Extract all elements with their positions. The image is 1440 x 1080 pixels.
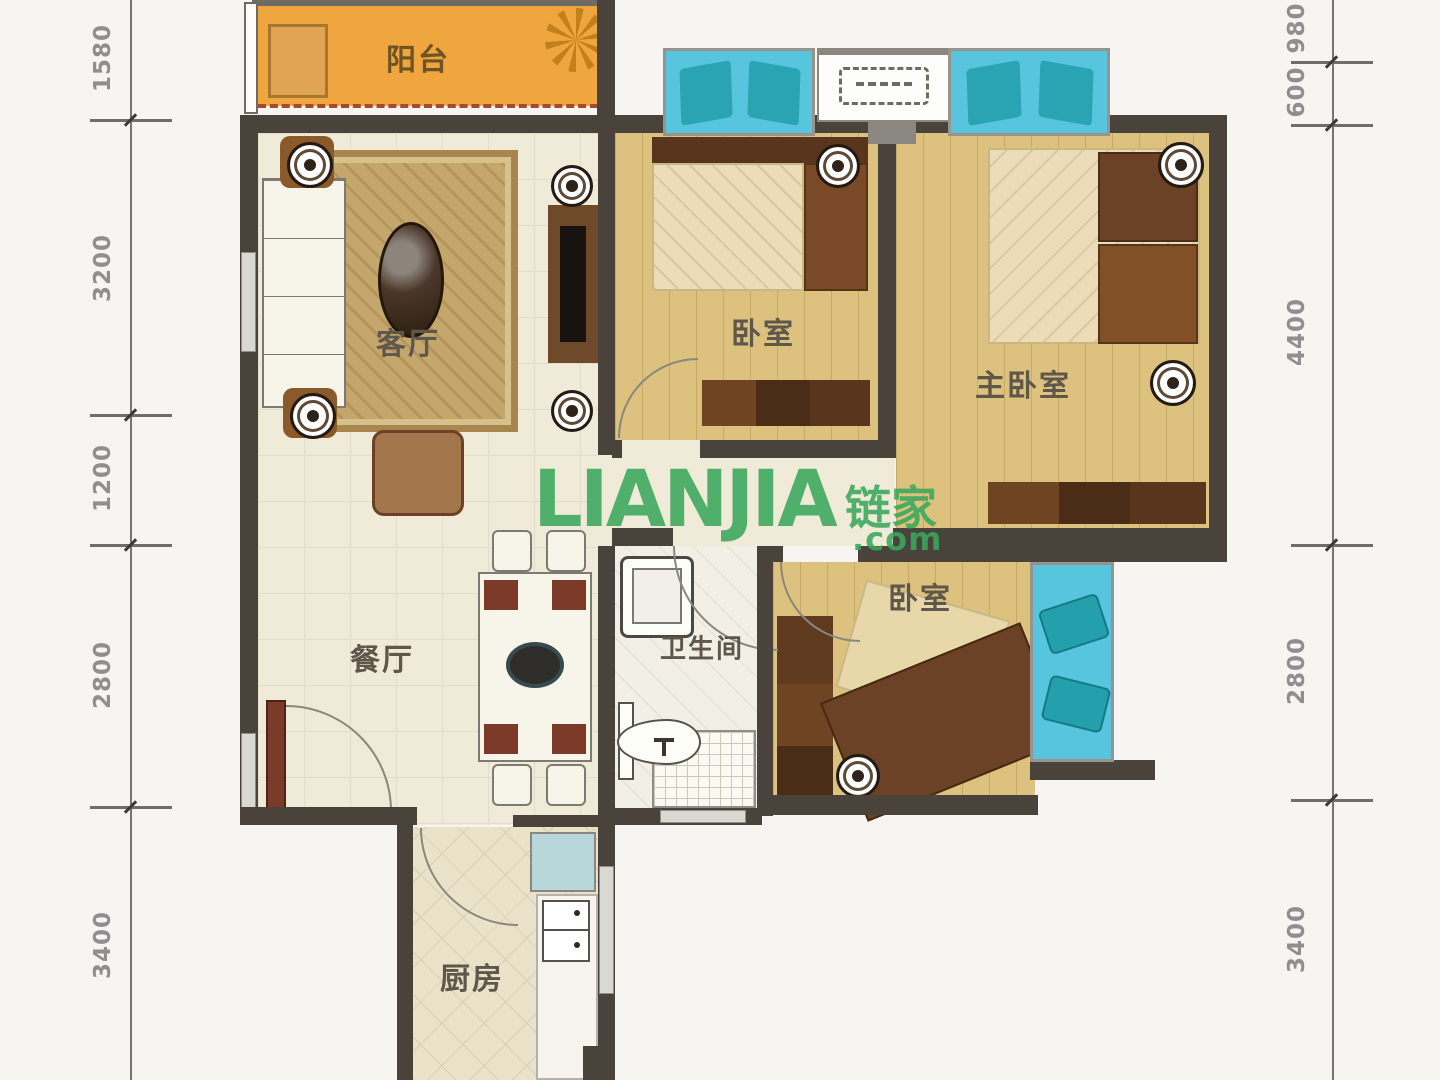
wall-segment	[598, 546, 615, 825]
window	[241, 733, 256, 811]
placemat	[484, 580, 518, 610]
sink-drain	[574, 942, 580, 948]
serving-platter	[506, 642, 564, 688]
kitchen-sink	[542, 900, 590, 962]
dresser	[702, 380, 870, 426]
dimension-label: 3400	[90, 885, 116, 1005]
kitchen-window-counter	[530, 832, 596, 892]
master-cabinet	[988, 482, 1206, 524]
dining-chair	[546, 764, 586, 806]
pillow-decoration	[1037, 593, 1110, 656]
sink-drain	[574, 910, 580, 916]
dimension-label: 2800	[1284, 611, 1310, 731]
bed-mattress	[652, 163, 804, 291]
ceiling-lamp-icon	[1150, 360, 1196, 406]
room-label-master-bedroom: 主卧室	[975, 361, 1071, 405]
wall-segment	[757, 546, 773, 816]
window	[660, 810, 746, 823]
dimension-label: 4400	[1284, 272, 1310, 392]
dimension-label: 1580	[90, 0, 116, 118]
table-lamp-icon	[287, 142, 333, 188]
dimension-label: 3200	[90, 208, 116, 328]
placemat	[552, 724, 586, 754]
placemat	[552, 580, 586, 610]
room-label-balcony: 阳台	[386, 35, 450, 79]
dining-chair	[492, 530, 532, 572]
kitchen-sink-divider	[542, 929, 590, 931]
wall-segment	[598, 115, 615, 455]
wall-segment	[597, 0, 615, 133]
dimension-label: 600	[1284, 32, 1310, 152]
ceiling-lamp-icon	[1158, 142, 1204, 188]
dining-chair	[492, 764, 532, 806]
ceiling-lamp-icon	[816, 144, 860, 188]
wall-segment	[773, 546, 783, 562]
master-bed-blanket	[1098, 244, 1198, 344]
dimension-label: 2800	[90, 615, 116, 735]
wall-segment	[240, 807, 417, 825]
wall-segment	[397, 820, 413, 1080]
wall-segment	[1030, 540, 1227, 562]
armchair	[372, 430, 464, 516]
balcony-roof-line	[252, 0, 604, 6]
bathroom-sink-basin	[632, 568, 682, 624]
curtain-decoration	[679, 60, 732, 126]
wall-segment	[240, 115, 258, 825]
placemat	[484, 724, 518, 754]
tv-screen	[560, 226, 586, 342]
ceiling-lamp-icon	[551, 165, 593, 207]
room-label-living-room: 客厅	[376, 319, 440, 363]
bay-window	[1030, 562, 1114, 762]
room-label-dining-room: 餐厅	[350, 635, 414, 679]
floor-plan: 阳台 客厅 卧室 主卧室 餐厅 卫生间 卧室 厨房 1580 3200 1200…	[0, 0, 1440, 1080]
bay-window	[948, 48, 1110, 136]
watermark-domain-text: .com	[852, 520, 942, 558]
curtain-decoration	[747, 60, 800, 126]
window	[241, 252, 256, 352]
wall-segment	[513, 815, 605, 827]
wall-segment	[878, 133, 896, 458]
curtain-decoration	[966, 60, 1021, 126]
ceiling-lamp-icon	[551, 390, 593, 432]
entry-door-leaf	[266, 700, 286, 810]
balcony-side-window	[244, 2, 258, 114]
shower-head-icon	[662, 742, 666, 756]
window	[599, 866, 614, 994]
wall-segment	[583, 1046, 615, 1080]
wall-segment	[1209, 115, 1227, 546]
curtain-decoration	[1038, 60, 1093, 126]
balcony-cabinet	[268, 24, 328, 98]
ac-unit-icon	[856, 82, 912, 90]
table-lamp-icon	[290, 393, 336, 439]
room-label-kitchen: 厨房	[440, 954, 504, 998]
room-label-bedroom-lower: 卧室	[888, 574, 952, 618]
wall-segment	[1030, 760, 1155, 780]
room-label-bedroom-top: 卧室	[731, 309, 795, 353]
dimension-label: 1200	[90, 418, 116, 538]
table-lamp-icon	[836, 754, 880, 798]
room-label-bathroom: 卫生间	[660, 629, 744, 666]
dimension-label: 3400	[1284, 879, 1310, 999]
sofa	[262, 178, 346, 408]
bay-window	[663, 48, 815, 136]
balcony-boundary-dashed-line	[258, 104, 598, 108]
wall-segment	[757, 795, 1038, 815]
watermark-brand-text: LIANJIA	[533, 455, 835, 545]
pillow-decoration	[1040, 674, 1111, 734]
